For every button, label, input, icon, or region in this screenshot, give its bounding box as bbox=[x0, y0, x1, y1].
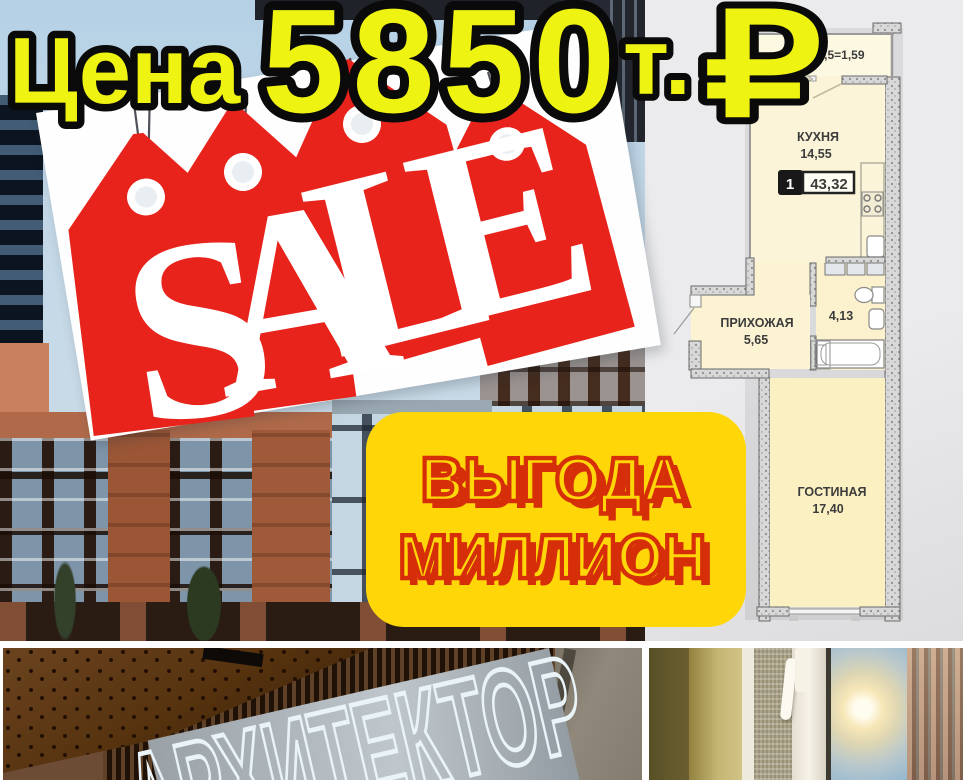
svg-text:ПРИХОЖАЯ: ПРИХОЖАЯ bbox=[720, 316, 793, 330]
svg-text:43,32: 43,32 bbox=[810, 176, 848, 193]
svg-text:17,40: 17,40 bbox=[812, 502, 843, 516]
svg-text:₽: ₽ bbox=[704, 0, 822, 146]
svg-text:5,65: 5,65 bbox=[744, 333, 768, 347]
svg-text:т.: т. bbox=[623, 9, 695, 114]
svg-text:Цена: Цена bbox=[9, 18, 241, 123]
svg-text:МИЛЛИОН: МИЛЛИОН bbox=[398, 522, 706, 591]
svg-text:ВЫГОДА: ВЫГОДА bbox=[421, 445, 686, 514]
svg-text:ГОСТИНАЯ: ГОСТИНАЯ bbox=[797, 485, 866, 499]
svg-text:4,13: 4,13 bbox=[829, 309, 853, 323]
svg-text:5850: 5850 bbox=[262, 0, 623, 144]
svg-text:1: 1 bbox=[786, 176, 794, 193]
svg-text:АРХИТЕКТОР: АРХИТЕКТОР bbox=[114, 648, 598, 780]
